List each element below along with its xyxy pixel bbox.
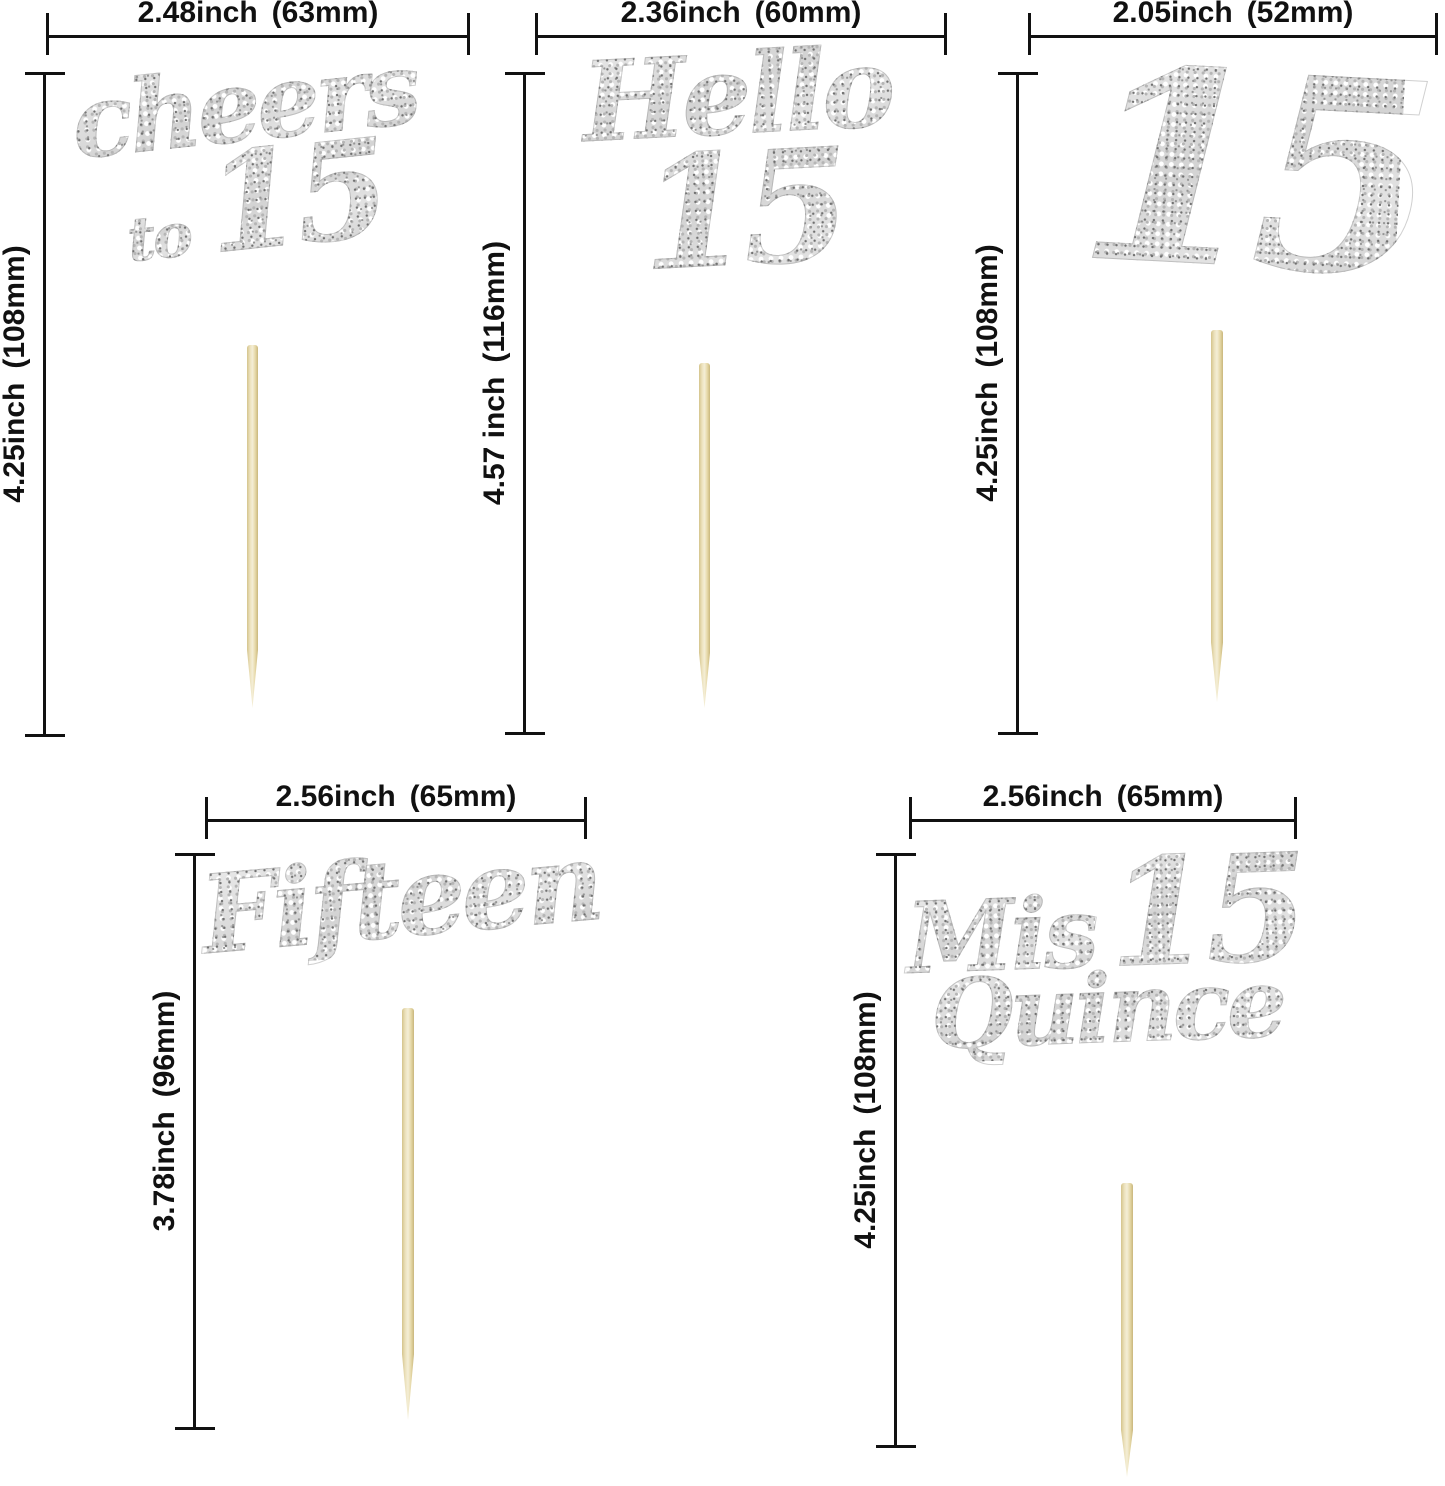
topper-number: 15 [200, 120, 390, 273]
dimension-line [523, 72, 526, 735]
dimension-tick-right [1435, 13, 1438, 55]
dimension-tick-left [205, 797, 208, 839]
dimension-tick-left [46, 13, 49, 55]
dimension-tick-left [1028, 13, 1031, 55]
dimension-tick-left [535, 13, 538, 55]
wooden-pick-mis-quince-15 [1121, 1183, 1133, 1477]
width-label: 2.56inch(65mm) [909, 782, 1297, 812]
topper-art-fifteen: Fifteen [196, 828, 604, 970]
dimension-tick-top [998, 72, 1038, 75]
topper-word: to [125, 205, 194, 271]
dimension-tick-bottom [876, 1445, 916, 1448]
dimension-line [206, 819, 586, 822]
height-dimension-15: 4.25inch(108mm) [996, 72, 1040, 735]
dimension-line [43, 72, 46, 737]
height-label: 4.57 inch(116mm) [480, 113, 510, 633]
dimension-tick-right [944, 13, 947, 55]
dimension-tick-left [909, 797, 912, 839]
height-label: 4.25inch(108mm) [973, 113, 1003, 633]
dimension-line [1016, 72, 1019, 735]
topper-number: 15 [1073, 32, 1406, 313]
topper-art-hello-15: Hello 15 [539, 30, 941, 297]
height-label: 4.25inch(108mm) [0, 114, 30, 634]
topper-art-cheers-to-15: cheers to 15 [50, 36, 450, 288]
topper-art-mis-quince-15: Mis 15 Quince [881, 832, 1328, 1064]
dimension-tick-bottom [998, 732, 1038, 735]
height-label: 4.25inch(108mm) [851, 860, 881, 1380]
width-label: 2.48inch(63mm) [46, 0, 470, 28]
dimension-tick-bottom [175, 1427, 215, 1430]
dimension-tick-bottom [25, 734, 65, 737]
width-label: 2.56inch(65mm) [205, 782, 587, 812]
product-dimension-diagram: 2.48inch(63mm) 4.25inch(108mm) cheers to… [0, 0, 1445, 1486]
dimension-tick-right [467, 13, 470, 55]
topper-word: Fifteen [196, 828, 604, 970]
topper-art-15: 15 [1073, 32, 1406, 313]
topper-word: Quince [886, 954, 1329, 1064]
wooden-pick-fifteen [402, 1008, 414, 1420]
dimension-tick-bottom [505, 732, 545, 735]
height-dimension-hello-15: 4.57 inch(116mm) [503, 72, 547, 735]
wooden-pick-cheers-to-15 [247, 345, 258, 708]
wooden-pick-hello-15 [699, 363, 710, 708]
wooden-pick-15 [1211, 330, 1223, 702]
dimension-line [193, 853, 196, 1430]
height-label: 3.78inch(96mm) [150, 851, 180, 1371]
